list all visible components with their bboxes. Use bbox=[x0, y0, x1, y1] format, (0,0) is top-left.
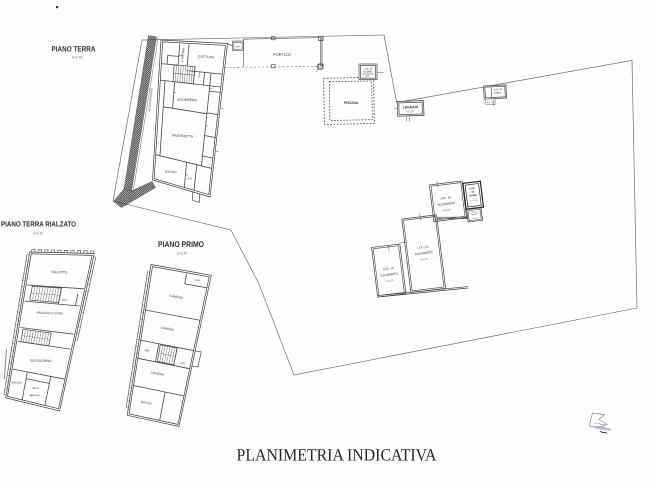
svg-text:LOC. DI: LOC. DI bbox=[364, 68, 373, 71]
svg-text:LOC. DI: LOC. DI bbox=[494, 88, 503, 91]
svg-text:h=2.00: h=2.00 bbox=[406, 110, 414, 113]
svg-text:PIANO TERRA: PIANO TERRA bbox=[52, 45, 96, 54]
svg-text:h=2.20: h=2.20 bbox=[487, 101, 494, 104]
svg-text:PIANO TERRA RIALZATO: PIANO TERRA RIALZATO bbox=[1, 219, 76, 228]
svg-text:PISCINA: PISCINA bbox=[344, 101, 359, 105]
svg-text:SGOMB.: SGOMB. bbox=[363, 71, 373, 74]
svg-text:A.B.: A.B. bbox=[187, 177, 193, 181]
svg-text:BAGNO: BAGNO bbox=[165, 170, 177, 175]
svg-text:PLANIMETRIA INDICATIVA: PLANIMETRIA INDICATIVA bbox=[237, 446, 438, 465]
svg-text:SOGGIORNO: SOGGIORNO bbox=[30, 359, 52, 363]
svg-text:BAGNO: BAGNO bbox=[12, 380, 23, 384]
svg-text:RIP.: RIP. bbox=[236, 45, 241, 48]
svg-text:PRANZO-CUCINA: PRANZO-CUCINA bbox=[37, 311, 65, 316]
svg-text:PIANO PRIMO: PIANO PRIMO bbox=[158, 240, 205, 249]
svg-text:h=2.70: h=2.70 bbox=[72, 56, 83, 60]
svg-text:SALOTTO: SALOTTO bbox=[51, 270, 67, 274]
svg-text:SGOM.: SGOM. bbox=[494, 91, 502, 94]
svg-text:ANTI: ANTI bbox=[32, 386, 39, 390]
svg-text:W.C.: W.C. bbox=[62, 298, 68, 302]
svg-text:PORTICO: PORTICO bbox=[273, 52, 291, 57]
svg-text:LEGNAIA: LEGNAIA bbox=[403, 105, 419, 110]
svg-text:h=2.70: h=2.70 bbox=[177, 252, 187, 256]
svg-text:h=2.70: h=2.70 bbox=[33, 232, 43, 236]
svg-text:BAGNO: BAGNO bbox=[30, 393, 41, 397]
svg-text:W.C.: W.C. bbox=[366, 75, 371, 78]
